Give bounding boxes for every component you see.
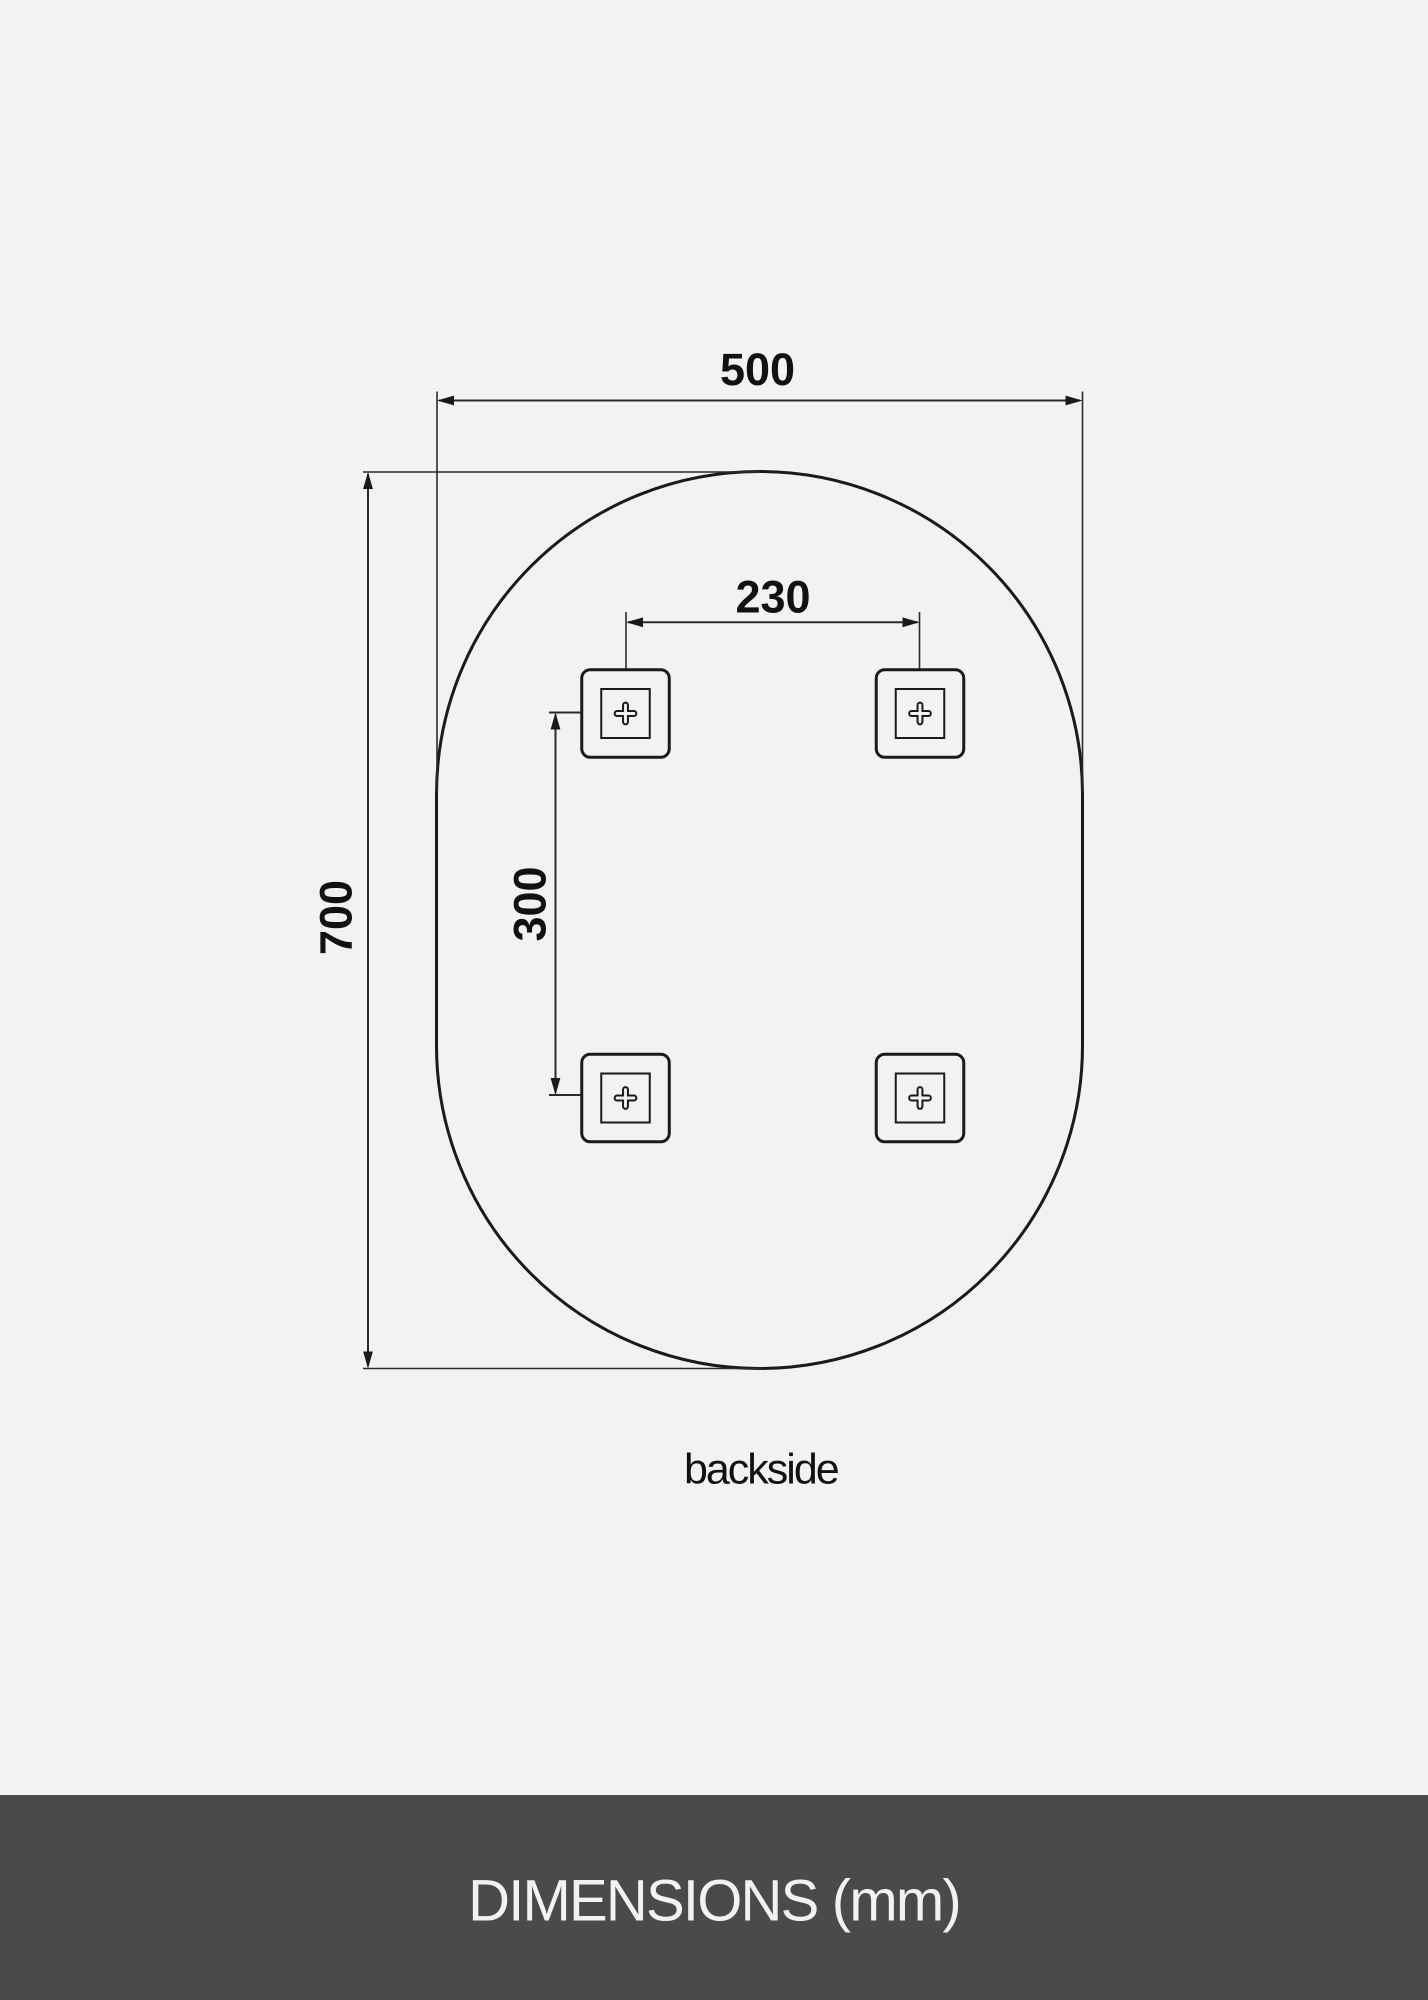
svg-text:DIMENSIONS (mm): DIMENSIONS (mm) — [468, 1869, 960, 1934]
svg-text:300: 300 — [505, 866, 556, 941]
svg-text:700: 700 — [311, 880, 362, 955]
svg-text:500: 500 — [720, 344, 795, 395]
svg-text:backside: backside — [684, 1446, 838, 1494]
svg-text:230: 230 — [735, 572, 810, 623]
